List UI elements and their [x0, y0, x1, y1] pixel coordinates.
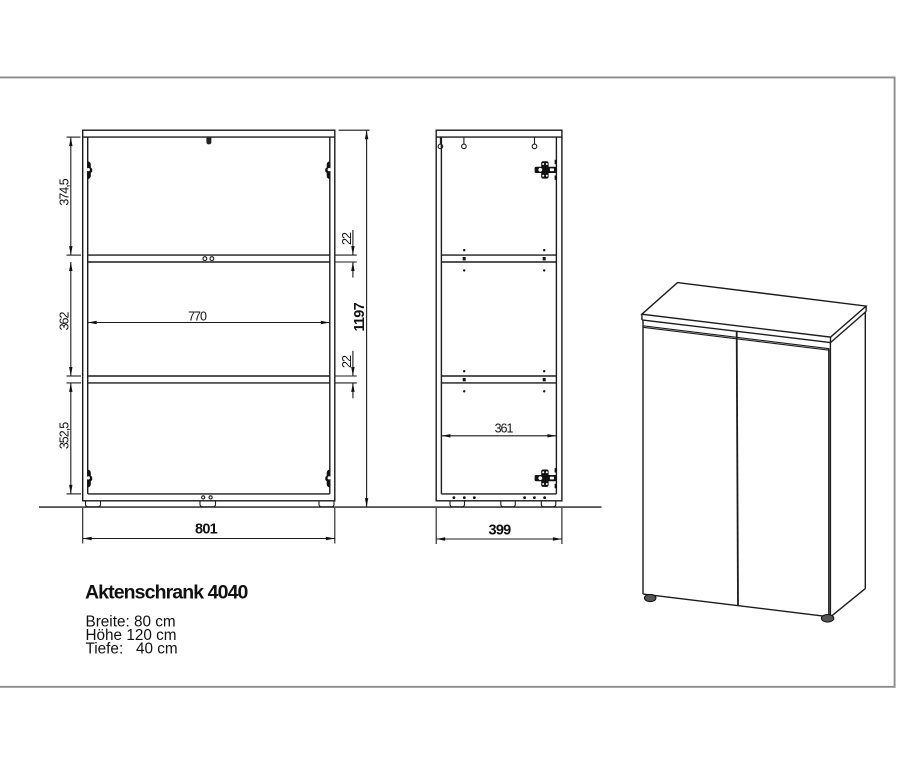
svg-text:374,5: 374,5 [57, 178, 71, 205]
svg-text:22: 22 [340, 232, 354, 245]
svg-text:Tiefe: 40 cm: Tiefe: 40 cm [86, 641, 178, 658]
svg-text:352,5: 352,5 [57, 422, 71, 449]
svg-text:770: 770 [188, 309, 207, 323]
svg-text:399: 399 [489, 523, 512, 539]
svg-text:361: 361 [495, 422, 514, 436]
svg-text:362: 362 [57, 312, 71, 331]
svg-text:Aktenschrank 4040: Aktenschrank 4040 [85, 582, 249, 604]
svg-text:801: 801 [195, 522, 218, 538]
svg-text:22: 22 [340, 355, 354, 368]
svg-text:1197: 1197 [352, 302, 368, 331]
